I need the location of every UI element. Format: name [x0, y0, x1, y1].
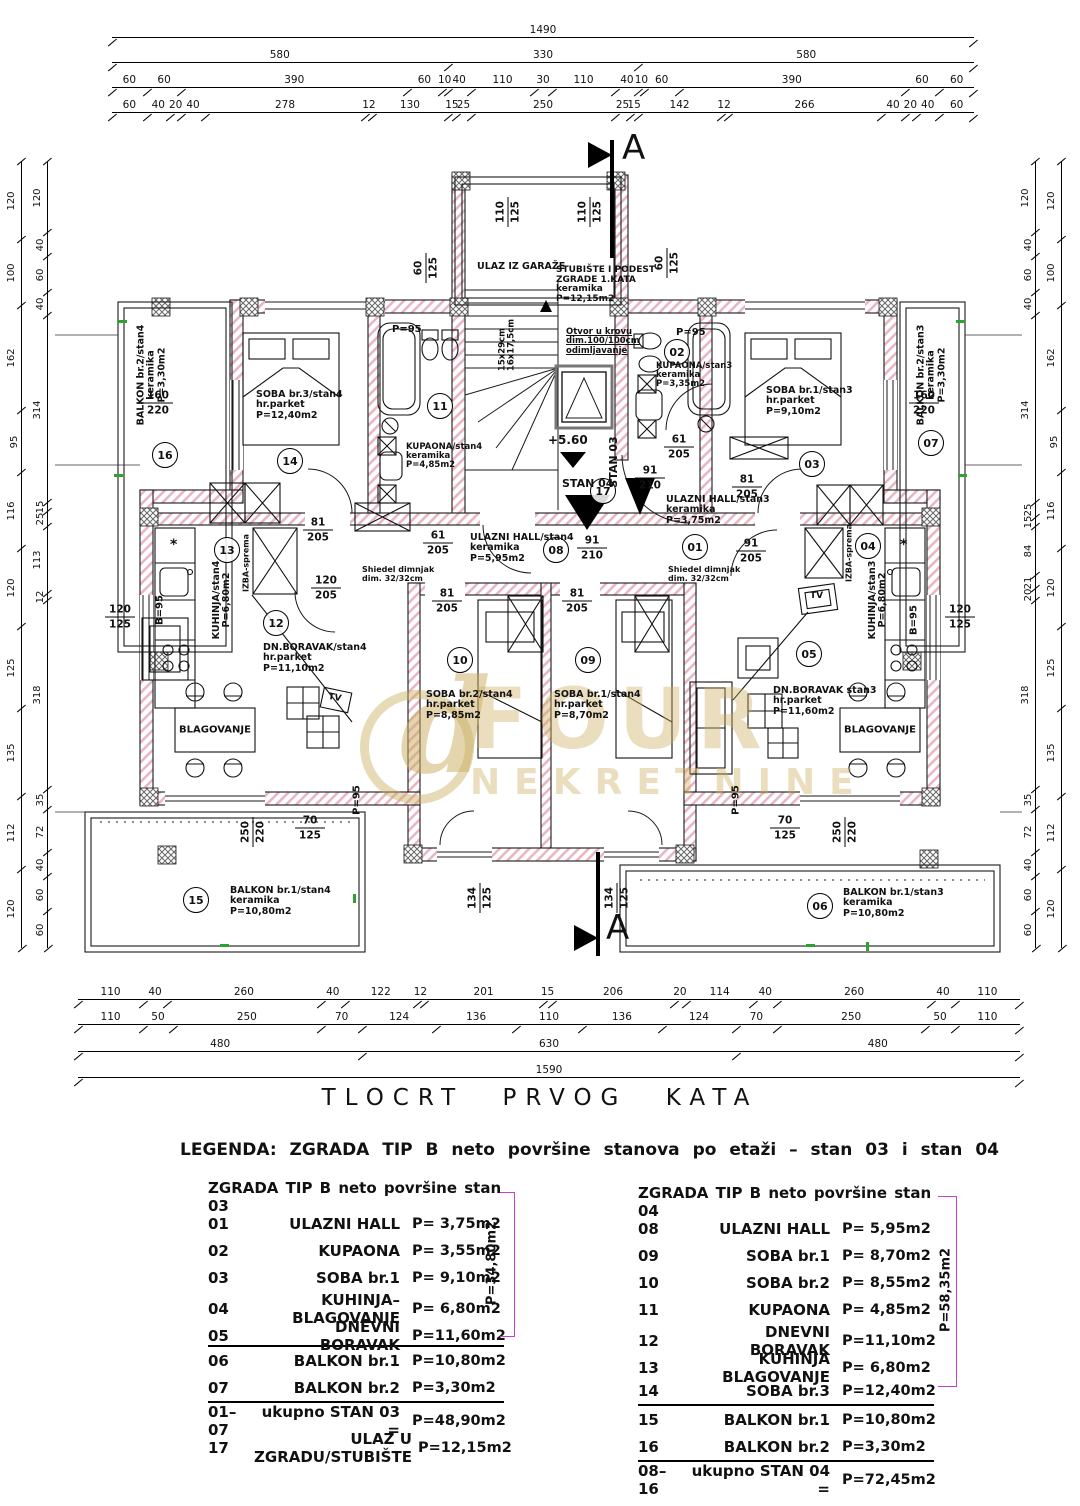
- stan04-subtotal-label: P=58,35m2: [939, 1248, 954, 1332]
- legend-row: 16BALKON br.2P=3,30m2: [638, 1433, 934, 1460]
- dim-value: 35: [1023, 794, 1034, 807]
- dim-value: 60: [915, 74, 928, 86]
- dim-fraction: 160220: [909, 391, 939, 416]
- legend-total-row: 01–07ukupno STAN 03 =P=48,90m2: [208, 1401, 504, 1430]
- row-num: 07: [208, 1379, 254, 1397]
- dim-value: 60: [157, 74, 170, 86]
- legend-row: 04KUHINJA–BLAGOVANJEP= 6,80m2: [208, 1291, 504, 1318]
- dim-value: 136: [612, 1011, 632, 1023]
- dim-fraction: 61205: [664, 435, 694, 460]
- dim-value: 20: [904, 99, 917, 111]
- dim-value: 70: [750, 1011, 763, 1023]
- dim-value: 580: [270, 49, 290, 61]
- row-area: P=12,40m2: [842, 1383, 934, 1399]
- room-number-13: 13: [214, 537, 240, 563]
- label-b95-left: B=95: [155, 595, 166, 625]
- dim-value: 60: [35, 268, 46, 281]
- dim-value: 318: [1020, 686, 1031, 705]
- dim-value: 135: [1046, 743, 1057, 762]
- dim-segment: 25: [456, 97, 470, 113]
- dim-value: 120: [1046, 192, 1057, 211]
- legend-stan03-header: ZGRADA TIP B neto površine stan 03: [208, 1183, 504, 1210]
- row-area: P=11,10m2: [842, 1333, 934, 1349]
- room-label-kuhinja-stan4: KUHINJA/stan4 P=6,80m2: [212, 561, 233, 640]
- dim-segment: 95: [8, 411, 22, 473]
- dim-segment: 120: [8, 549, 22, 627]
- dim-value: 60: [123, 99, 136, 111]
- drawing-title: TLOCRT PRVOG KATA: [0, 1085, 1080, 1111]
- dim-fraction: 120205: [311, 576, 341, 601]
- dim-segment: 120: [1048, 870, 1062, 948]
- row-area: P=48,90m2: [412, 1413, 504, 1429]
- dim-segment: 40: [1022, 233, 1036, 257]
- room-number-09: 09: [575, 647, 601, 673]
- dim-value: 40: [452, 74, 465, 86]
- dim-value: 110: [492, 74, 512, 86]
- dim-segment: 120: [8, 870, 22, 948]
- label-tv-right: TV: [810, 592, 823, 602]
- row-area: P=12,15m2: [418, 1440, 510, 1456]
- row-num: 05: [208, 1327, 254, 1345]
- dim-segment: 60: [1022, 877, 1036, 913]
- dim-segment: 50: [925, 1009, 955, 1025]
- dim-segment: 142: [638, 97, 720, 113]
- room-number-10: 10: [447, 647, 473, 673]
- dim-fraction: 120125: [945, 605, 975, 630]
- dim-value: 20: [673, 986, 686, 998]
- legend-table-stan04: ZGRADA TIP B neto površine stan 04 08ULA…: [638, 1188, 934, 1489]
- dim-a: 61: [431, 531, 446, 542]
- dim-segment: 60: [112, 97, 147, 113]
- label-p95-topright: P=95: [676, 327, 706, 338]
- label-blagovanje-left: BLAGOVANJE: [179, 725, 251, 736]
- dim-value: 120: [1046, 578, 1057, 597]
- dim-value: 30: [536, 74, 549, 86]
- dim-value: 20: [169, 99, 182, 111]
- row-name: DNEVNI BORAVAK: [254, 1318, 412, 1354]
- room-number-11: 11: [427, 393, 453, 419]
- dim-chain-right-outer: 12010016295116120125135112120: [1048, 162, 1062, 948]
- room-number-05: 05: [796, 641, 822, 667]
- dim-value: 40: [326, 986, 339, 998]
- dim-fraction: 134125: [468, 883, 493, 913]
- dim-segment: 162: [8, 306, 22, 412]
- dim-value: 120: [32, 188, 43, 207]
- row-area: P=3,30m2: [842, 1439, 934, 1455]
- dim-value: 40: [35, 298, 46, 311]
- dim-segment: 136: [436, 1009, 517, 1025]
- dim-a: 160: [913, 391, 935, 402]
- dim-a: 81: [740, 475, 755, 486]
- room-number-01: 01: [682, 534, 708, 560]
- dim-segment: 12: [365, 97, 372, 113]
- dim-value: 40: [759, 986, 772, 998]
- dim-value: 60: [1023, 268, 1034, 281]
- dim-a: 70: [778, 816, 793, 827]
- dim-a: 60: [414, 261, 425, 276]
- row-name: ULAZNI HALL: [684, 1220, 842, 1238]
- dim-segment: 12: [417, 984, 424, 1000]
- dim-segment: 60: [905, 72, 940, 88]
- room-label-balkon-15: BALKON br.1/stan4 keramika P=10,80m2: [230, 886, 331, 917]
- dim-segment: 480: [736, 1036, 1020, 1052]
- dim-segment: 40: [931, 984, 955, 1000]
- dim-segment: 110: [955, 1009, 1020, 1025]
- label-fridge-star-right: *: [900, 538, 907, 553]
- dim-value: 60: [35, 888, 46, 901]
- section-letter-bottom: A: [606, 910, 629, 947]
- dim-fraction: 81205: [432, 589, 462, 614]
- dim-b: 205: [566, 603, 588, 614]
- dim-segment: 250: [173, 1009, 321, 1025]
- dim-segment: 113: [34, 527, 48, 594]
- dim-chain-bottom-1: 11040260401221220115206201144026040110: [78, 984, 1020, 1000]
- dim-value: 110: [977, 1011, 997, 1023]
- dim-segment: 20: [170, 97, 182, 113]
- dim-value: 40: [886, 99, 899, 111]
- dim-chain-top-3: 6060390601040110301104010603906060: [112, 72, 974, 88]
- dim-value: 314: [1020, 400, 1031, 419]
- dim-fraction: 81205: [732, 475, 762, 500]
- dim-value: 390: [284, 74, 304, 86]
- dim-segment: 60: [407, 72, 442, 88]
- dim-segment: 116: [8, 473, 22, 549]
- dim-b: 205: [436, 603, 458, 614]
- dim-value: 60: [123, 74, 136, 86]
- dim-fraction: 120125: [105, 605, 135, 630]
- dim-b: 125: [109, 619, 131, 630]
- dim-segment: 15: [448, 97, 457, 113]
- dim-a: 120: [949, 605, 971, 616]
- dim-segment: 40: [1022, 293, 1036, 317]
- dim-fraction: 160220: [143, 391, 173, 416]
- legend-row: 05DNEVNI BORAVAKP=11,60m2: [208, 1318, 504, 1345]
- dim-value: 50: [151, 1011, 164, 1023]
- stan03-subtotal-label: P=34,80m2: [485, 1221, 500, 1305]
- dim-fraction: 250220: [833, 817, 858, 847]
- dim-value: 110: [573, 74, 593, 86]
- section-markers: [560, 140, 655, 956]
- dim-segment: 70: [736, 1009, 777, 1025]
- row-name: SOBA br.2: [684, 1274, 842, 1292]
- dim-b: 125: [510, 201, 521, 223]
- dim-segment: 206: [552, 984, 674, 1000]
- dim-segment: 60: [939, 72, 974, 88]
- dim-value: 116: [6, 501, 17, 520]
- room-label-kupaona-stan4: KUPAONA/stan4 keramika P=4,85m2: [406, 443, 482, 471]
- dim-segment: 110: [955, 984, 1020, 1000]
- dim-segment: 1490: [112, 22, 974, 38]
- dim-b: 125: [592, 201, 603, 223]
- dim-b: 125: [482, 887, 493, 909]
- dim-segment: 580: [112, 47, 448, 63]
- dim-b: 205: [668, 449, 690, 460]
- dim-value: 206: [603, 986, 623, 998]
- dim-chain-left-outer: 12010016295116120125135112120: [8, 162, 22, 948]
- dim-segment: 201: [424, 984, 543, 1000]
- dim-fraction: 134125: [605, 883, 630, 913]
- dim-segment: 112: [1048, 797, 1062, 870]
- dim-segment: 130: [372, 97, 447, 113]
- dim-segment: 60: [1022, 257, 1036, 293]
- dim-segment: 125: [8, 627, 22, 709]
- room-number-12: 12: [263, 610, 289, 636]
- dim-chain-top-4: 6040204027812130152525025151421226640204…: [112, 97, 974, 113]
- row-area: P=72,45m2: [842, 1472, 934, 1488]
- dim-segment: 40: [881, 97, 904, 113]
- dim-a: 91: [643, 466, 658, 477]
- dim-value: 35: [35, 794, 46, 807]
- dim-segment: 125: [1048, 627, 1062, 709]
- dim-a: 134: [468, 887, 479, 909]
- dim-value: 480: [210, 1038, 230, 1050]
- dim-value: 60: [35, 924, 46, 937]
- label-stan03-arrow: STAN 03: [608, 436, 620, 487]
- dim-value: 72: [1023, 825, 1034, 838]
- dim-segment: 40: [1022, 853, 1036, 877]
- dim-value: 1590: [536, 1064, 563, 1076]
- dim-segment: 60: [1022, 912, 1036, 948]
- dim-value: 130: [400, 99, 420, 111]
- dim-b: 220: [255, 821, 266, 843]
- row-area: P=10,80m2: [412, 1353, 504, 1369]
- dim-fraction: 60125: [414, 253, 439, 283]
- dim-segment: 116: [1048, 473, 1062, 549]
- row-area: P=3,30m2: [412, 1380, 504, 1396]
- dim-segment: 40: [181, 97, 204, 113]
- dim-fraction: 61205: [423, 531, 453, 556]
- dim-value: 112: [1046, 824, 1057, 843]
- label-stair-steps: 15x29cm 16x17,5cm: [499, 319, 518, 371]
- row-num: 01: [208, 1215, 254, 1233]
- legend-row: 14SOBA br.3P=12,40m2: [638, 1377, 934, 1404]
- dim-value: 260: [844, 986, 864, 998]
- dim-segment: 124: [362, 1009, 435, 1025]
- dim-a: 110: [578, 201, 589, 223]
- row-num: 06: [208, 1352, 254, 1370]
- dim-segment: 110: [471, 72, 535, 88]
- watermark-text-small: NEKRETNINE: [470, 762, 868, 803]
- label-dimnjak-right: Shiedel dimnjak dim. 32/32cm: [668, 566, 740, 584]
- dim-segment: 110: [516, 1009, 581, 1025]
- row-area: P= 4,85m2: [842, 1302, 934, 1318]
- row-num: 10: [638, 1274, 684, 1292]
- dim-a: 120: [109, 605, 131, 616]
- dim-segment: 40: [34, 233, 48, 257]
- row-name: SOBA br.1: [684, 1247, 842, 1265]
- dim-value: 114: [710, 986, 730, 998]
- room-number-16: 16: [152, 442, 178, 468]
- dim-segment: 278: [205, 97, 366, 113]
- dim-a: 60: [655, 256, 666, 271]
- dim-fraction: 70125: [295, 816, 325, 841]
- dim-value: 84: [1023, 545, 1034, 558]
- dim-chain-top-1: 1490: [112, 22, 974, 38]
- room-number-06: 06: [807, 893, 833, 919]
- dim-value: 72: [35, 825, 46, 838]
- dim-value: 120: [6, 578, 17, 597]
- dim-value: 40: [148, 986, 161, 998]
- dim-segment: 120: [1022, 162, 1036, 233]
- dim-chain-bottom-4: 1590: [78, 1062, 1020, 1078]
- dim-value: 25: [35, 513, 46, 526]
- dim-value: 40: [152, 99, 165, 111]
- dim-segment: 266: [728, 97, 882, 113]
- dim-segment: 260: [777, 984, 931, 1000]
- dim-segment: 122: [345, 984, 417, 1000]
- dim-segment: 630: [362, 1036, 735, 1052]
- dim-value: 21: [1023, 576, 1034, 589]
- dim-segment: 40: [34, 853, 48, 877]
- dim-value: 112: [6, 824, 17, 843]
- dim-segment: 60: [34, 877, 48, 913]
- dim-segment: 60: [112, 72, 147, 88]
- row-area: P= 8,70m2: [842, 1248, 934, 1264]
- row-num: 12: [638, 1332, 684, 1350]
- dim-b: 210: [639, 480, 661, 491]
- label-dimnjak-left: Shiedel dimnjak dim. 32/32cm: [362, 566, 434, 584]
- label-stan04-arrow: STAN 04: [562, 478, 613, 490]
- dim-value: 100: [6, 263, 17, 282]
- dim-value: 60: [1023, 888, 1034, 901]
- legend-row: 09SOBA br.1P= 8,70m2: [638, 1242, 934, 1269]
- dim-segment: 40: [916, 97, 939, 113]
- dim-chain-right-inner: 12040604031425158421203183572406060: [1022, 162, 1036, 948]
- dim-a: 61: [672, 435, 687, 446]
- dim-b: 125: [619, 887, 630, 909]
- dim-value: 60: [950, 99, 963, 111]
- row-num: 15: [638, 1411, 684, 1429]
- dim-b: 125: [669, 252, 680, 274]
- dim-value: 135: [6, 743, 17, 762]
- dim-segment: 318: [1022, 601, 1036, 790]
- row-name: BALKON br.2: [684, 1438, 842, 1456]
- dim-segment: 72: [34, 810, 48, 853]
- room-label-soba1-stan4: SOBA br.1/stan4 hr.parket P=8,70m2: [554, 690, 641, 721]
- dim-value: 40: [186, 99, 199, 111]
- dim-value: 40: [35, 239, 46, 252]
- dim-value: 120: [1046, 899, 1057, 918]
- dim-segment: 135: [8, 709, 22, 797]
- dim-segment: 580: [638, 47, 974, 63]
- legend-row: 02KUPAONAP= 3,55m2: [208, 1237, 504, 1264]
- dim-value: 95: [1049, 436, 1060, 449]
- dim-segment: 136: [582, 1009, 663, 1025]
- label-ulaz-garaze: ULAZ IZ GARAŽE: [477, 262, 565, 272]
- dim-b: 205: [740, 553, 762, 564]
- legend-row: 07BALKON br.2P=3,30m2: [208, 1374, 504, 1401]
- row-name: KUPAONA: [684, 1301, 842, 1319]
- dim-a: 91: [585, 536, 600, 547]
- dim-value: 318: [32, 686, 43, 705]
- row-num: 11: [638, 1301, 684, 1319]
- dim-a: 70: [303, 816, 318, 827]
- row-name: ULAZNI HALL: [254, 1215, 412, 1233]
- dim-segment: 314: [1022, 316, 1036, 502]
- row-num: 02: [208, 1242, 254, 1260]
- dim-a: 250: [241, 821, 252, 843]
- dim-value: 60: [1023, 924, 1034, 937]
- dim-value: 120: [1020, 188, 1031, 207]
- legend-row: 12DNEVNI BORAVAKP=11,10m2: [638, 1323, 934, 1350]
- dim-value: 390: [782, 74, 802, 86]
- dim-segment: 95: [1048, 411, 1062, 473]
- dim-b: 205: [307, 532, 329, 543]
- dim-fraction: 81205: [303, 518, 333, 543]
- dim-fraction: 91210: [577, 536, 607, 561]
- dim-value: 278: [275, 99, 295, 111]
- dim-value: 40: [620, 74, 633, 86]
- dim-value: 60: [418, 74, 431, 86]
- dim-segment: 12: [721, 97, 728, 113]
- legend-table-stan03: ZGRADA TIP B neto površine stan 03 01ULA…: [208, 1183, 504, 1457]
- label-level: +5.60: [548, 434, 588, 447]
- dim-segment: 250: [471, 97, 616, 113]
- dim-value: 25: [457, 99, 470, 111]
- row-area: P= 5,95m2: [842, 1221, 934, 1237]
- dim-segment: 120: [8, 162, 22, 240]
- row-area: P=10,80m2: [842, 1412, 934, 1428]
- dim-value: 250: [841, 1011, 861, 1023]
- dim-fraction: 91210: [635, 466, 665, 491]
- dim-segment: 250: [777, 1009, 925, 1025]
- dim-segment: 70: [321, 1009, 362, 1025]
- dim-segment: 390: [679, 72, 905, 88]
- dim-b: 220: [913, 405, 935, 416]
- dim-value: 50: [933, 1011, 946, 1023]
- dim-segment: 318: [34, 601, 48, 790]
- dim-chain-bottom-2: 11050250701241361101361247025050110: [78, 1009, 1020, 1025]
- row-name: SOBA br.1: [254, 1269, 412, 1287]
- dim-a: 91: [744, 539, 759, 550]
- dim-segment: 35: [1022, 790, 1036, 811]
- dim-b: 205: [736, 489, 758, 500]
- legend-row: 11KUPAONAP= 4,85m2: [638, 1296, 934, 1323]
- dim-segment: 72: [1022, 810, 1036, 853]
- label-blagovanje-right: BLAGOVANJE: [844, 725, 916, 736]
- dim-value: 95: [9, 436, 20, 449]
- dim-segment: 15: [1022, 518, 1036, 527]
- legend-row: 03SOBA br.1P= 9,10m2: [208, 1264, 504, 1291]
- dim-value: 60: [655, 74, 668, 86]
- dim-fraction: 110125: [496, 197, 521, 227]
- label-p95-topleft: P=95: [392, 324, 422, 335]
- floor-plan-page: d FOUR NEKRETNINE 1490 580330580 6060390…: [0, 0, 1080, 1506]
- dim-segment: 110: [78, 1009, 143, 1025]
- dim-value: 40: [1023, 239, 1034, 252]
- dim-fraction: 70125: [770, 816, 800, 841]
- legend-total-row: 08–16ukupno STAN 04 =P=72,45m2: [638, 1460, 934, 1489]
- dim-segment: 40: [143, 984, 167, 1000]
- dim-value: 125: [6, 658, 17, 677]
- dim-segment: 110: [552, 72, 616, 88]
- dim-b: 220: [847, 821, 858, 843]
- row-num: 14: [638, 1382, 684, 1400]
- dim-segment: 120: [34, 162, 48, 233]
- row-num: 09: [638, 1247, 684, 1265]
- dim-b: 125: [774, 830, 796, 841]
- dim-fraction: 250220: [241, 817, 266, 847]
- room-number-14: 14: [277, 448, 303, 474]
- dim-segment: 40: [448, 72, 471, 88]
- room-label-soba3-stan4: SOBA br.3/stan4 hr.parket P=12,40m2: [256, 390, 343, 421]
- stan03-subtotal-bracket: [500, 1192, 515, 1337]
- dim-value: 70: [335, 1011, 348, 1023]
- dim-b: 205: [315, 590, 337, 601]
- dim-value: 120: [6, 192, 17, 211]
- dim-segment: 60: [34, 912, 48, 948]
- dim-value: 580: [796, 49, 816, 61]
